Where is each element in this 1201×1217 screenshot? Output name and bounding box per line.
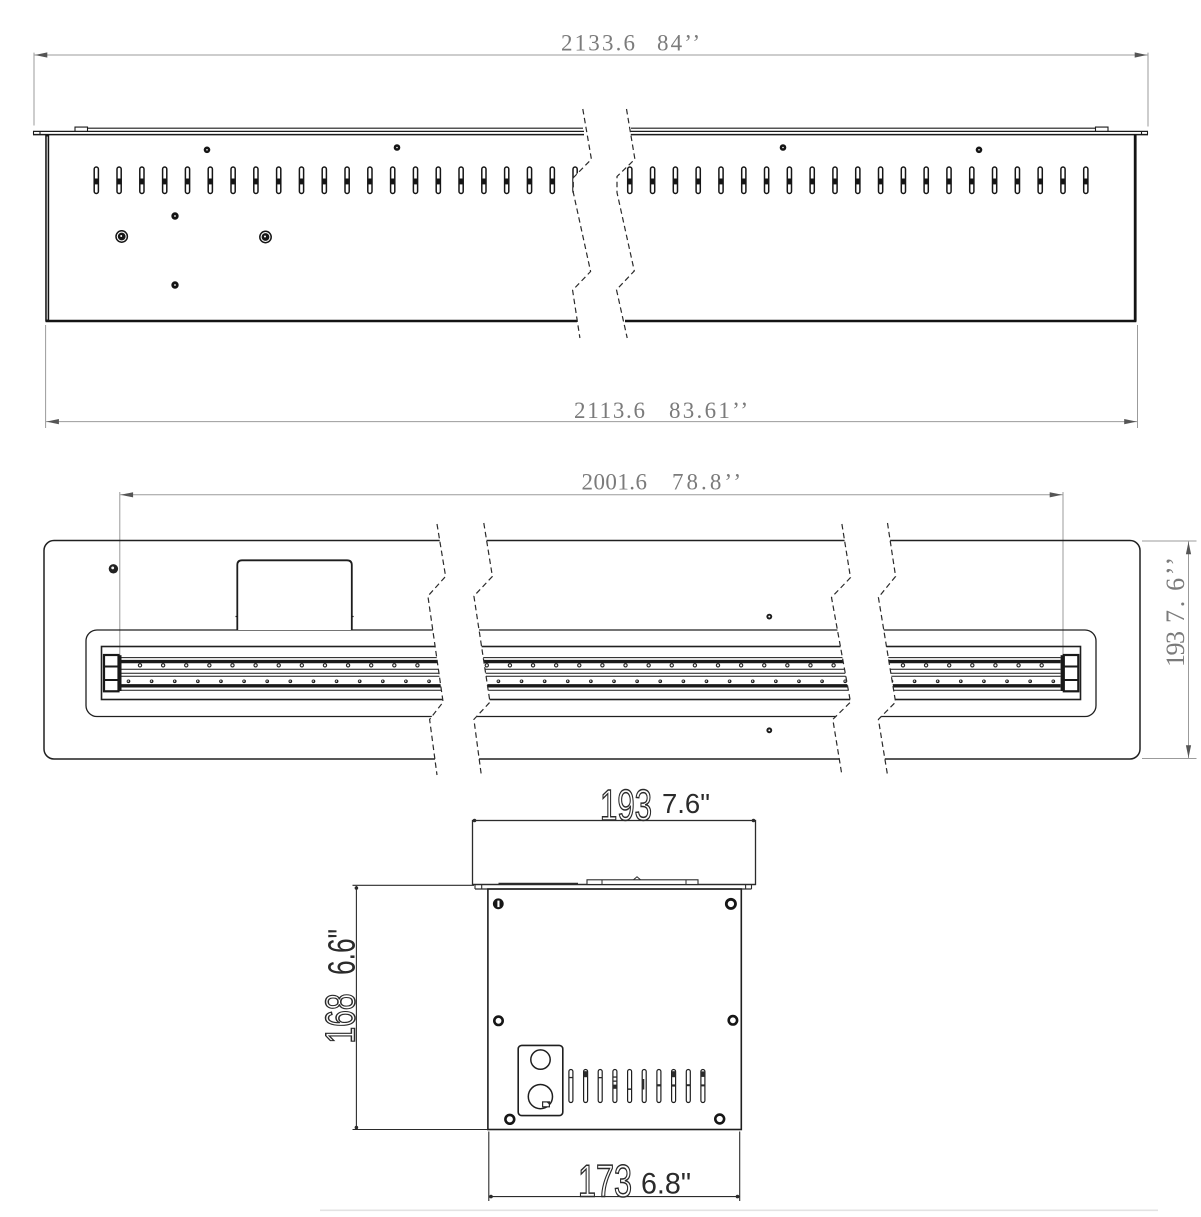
svg-text:2001.6: 2001.6 bbox=[582, 469, 648, 494]
svg-text:168: 168 bbox=[317, 994, 364, 1044]
svg-text:84’’: 84’’ bbox=[657, 31, 700, 56]
svg-text:6.6": 6.6" bbox=[322, 929, 364, 975]
svg-text:193: 193 bbox=[1161, 631, 1190, 667]
svg-text:173: 173 bbox=[578, 1155, 632, 1206]
svg-text:7.6": 7.6" bbox=[662, 788, 710, 819]
svg-text:2113.6: 2113.6 bbox=[574, 398, 645, 423]
svg-text:2133.6: 2133.6 bbox=[561, 31, 635, 56]
svg-text:6.8": 6.8" bbox=[641, 1168, 691, 1201]
svg-text:78.8’’: 78.8’’ bbox=[672, 469, 741, 494]
svg-text:193: 193 bbox=[600, 781, 652, 830]
